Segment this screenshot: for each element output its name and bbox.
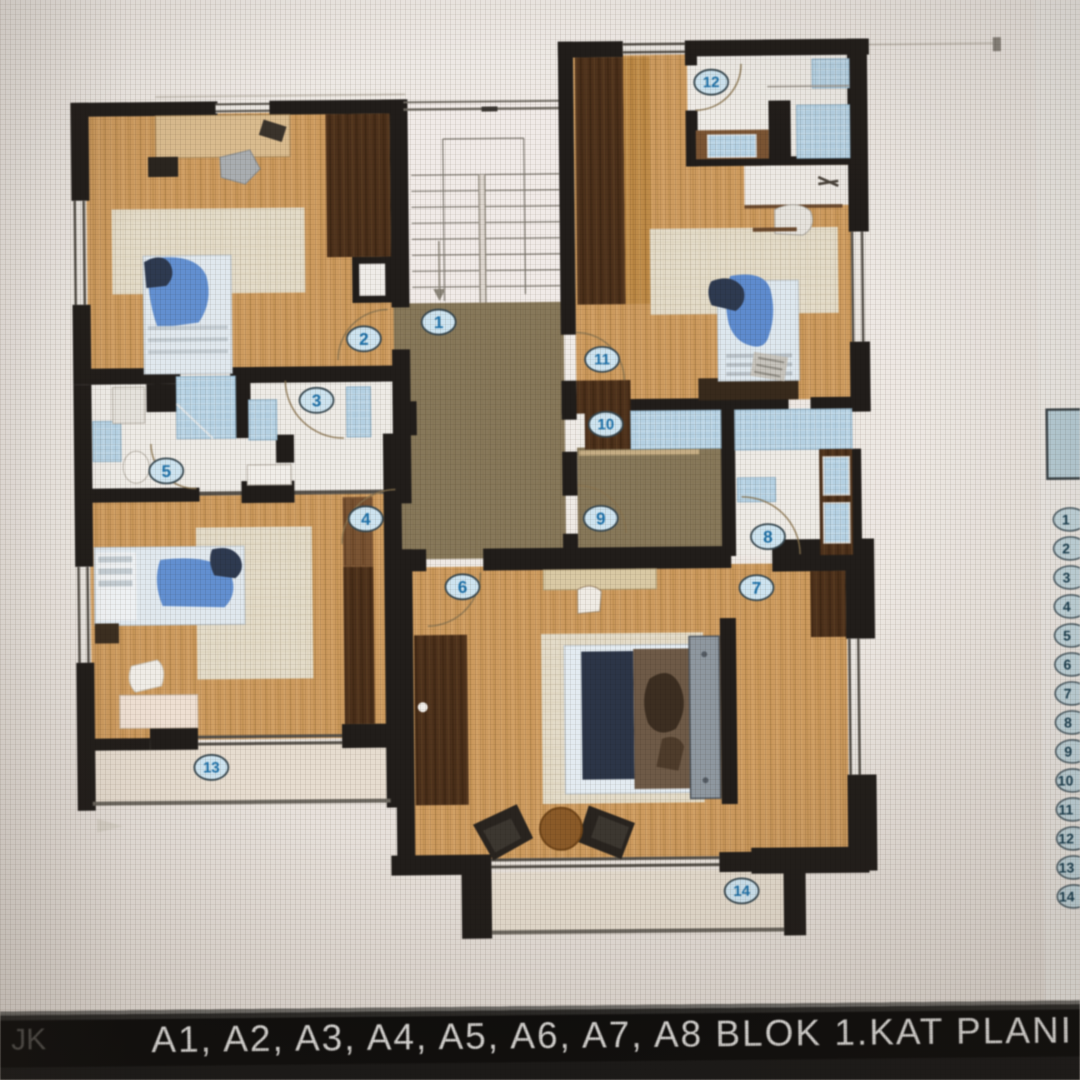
svg-text:7: 7 [752,579,762,598]
svg-text:2: 2 [359,330,369,349]
svg-text:10: 10 [1058,772,1074,788]
svg-text:12: 12 [703,74,720,91]
svg-text:12: 12 [1058,830,1074,846]
svg-text:4: 4 [361,510,371,529]
svg-text:3: 3 [1062,569,1070,585]
svg-text:13: 13 [203,759,220,776]
svg-text:1: 1 [434,313,444,332]
svg-text:8: 8 [1064,714,1072,730]
svg-text:6: 6 [458,578,468,597]
svg-text:9: 9 [596,509,606,528]
svg-text:14: 14 [1059,888,1075,904]
svg-text:9: 9 [1064,743,1072,759]
svg-text:6: 6 [1063,656,1071,672]
svg-text:11: 11 [594,351,610,368]
svg-text:4: 4 [1063,598,1071,614]
svg-text:10: 10 [597,416,614,433]
svg-text:5: 5 [1063,627,1071,643]
svg-text:5: 5 [161,462,171,481]
svg-text:3: 3 [312,391,322,410]
svg-text:8: 8 [763,528,773,547]
svg-text:JK: JK [11,1023,46,1056]
svg-text:1: 1 [1062,511,1070,527]
svg-text:14: 14 [733,883,751,900]
svg-text:7: 7 [1064,685,1072,701]
svg-text:2: 2 [1062,540,1070,556]
svg-text:13: 13 [1059,859,1075,875]
svg-text:11: 11 [1058,801,1073,817]
